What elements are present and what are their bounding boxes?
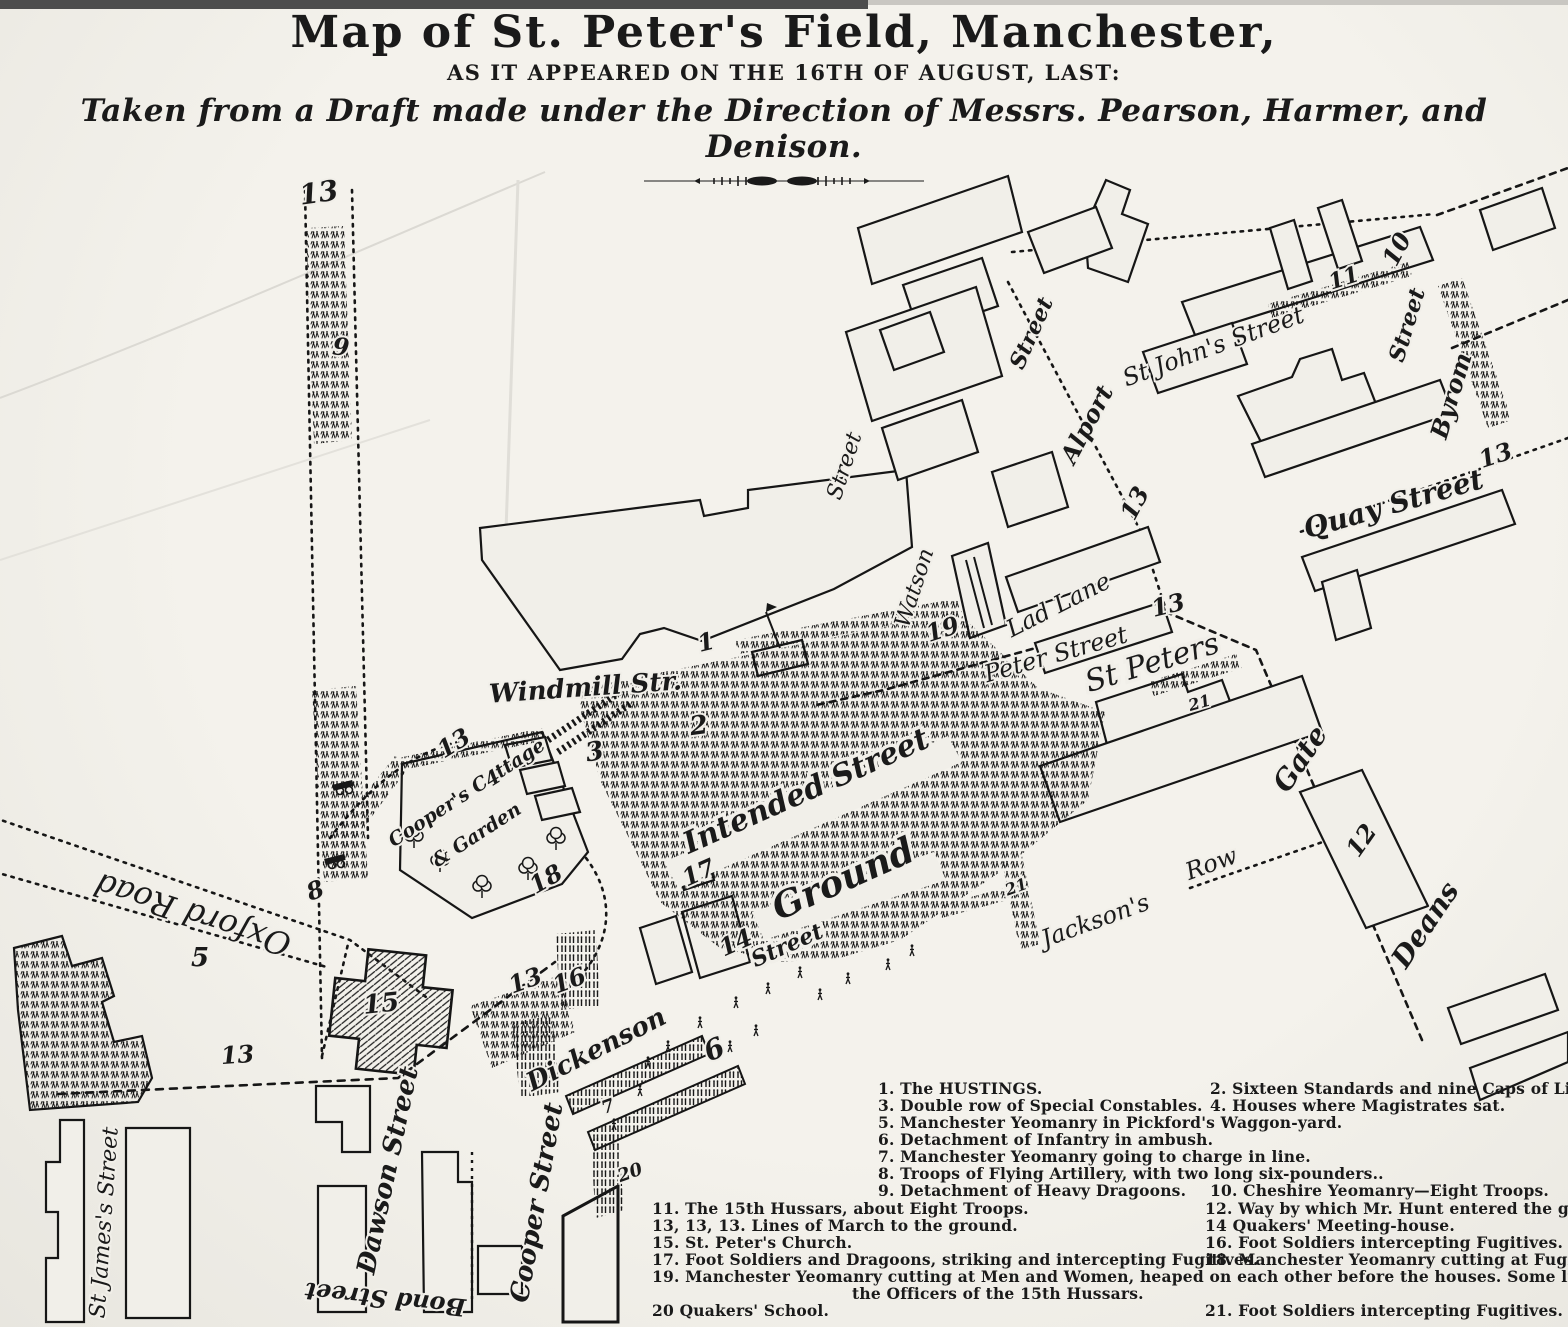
legend-row: 15. St. Peter's Church.16. Foot Soldiers… — [652, 1233, 1566, 1250]
legend-row: 20 Quakers' School.21. Foot Soldiers int… — [652, 1301, 1566, 1318]
legend-row: 3. Double row of Special Constables.4. H… — [878, 1096, 1566, 1113]
map-number: 13 — [1475, 436, 1516, 474]
street-label-alport-street: Street — [1004, 293, 1059, 373]
legend-entry-9: 9. Detachment of Heavy Dragoons. — [878, 1181, 1186, 1200]
street-label-byrom-street: Street — [1384, 285, 1431, 365]
divider-ornament — [634, 171, 934, 191]
map-number: 13 — [220, 1039, 255, 1070]
street-label-st-james-street: St James's Street — [85, 1126, 123, 1319]
legend-row: 13, 13, 13. Lines of March to the ground… — [652, 1216, 1566, 1233]
building-quakers-meeting-house-a — [640, 916, 692, 984]
building-dawson-c — [422, 1152, 472, 1312]
legend-row: 11. The 15th Hussars, about Eight Troops… — [652, 1199, 1566, 1216]
pickfords-waggon-yard — [14, 936, 152, 1110]
legend-row: 9. Detachment of Heavy Dragoons.10. Ches… — [878, 1181, 1566, 1198]
legend-row: the Officers of the 15th Hussars. — [652, 1284, 1566, 1301]
street-label-cooper-street: Cooper Street — [505, 1100, 570, 1305]
map-title: Map of St. Peter's Field, Manchester, — [0, 10, 1568, 56]
legend-block-top: 1. The HUSTINGS.2. Sixteen Standards and… — [878, 1079, 1566, 1198]
building-dawson-a — [316, 1086, 370, 1152]
map-number: 7 — [599, 1095, 618, 1119]
map-number: 9 — [331, 331, 351, 362]
legend-row: 17. Foot Soldiers and Dragoons, striking… — [652, 1250, 1566, 1267]
building-st-james-b — [126, 1128, 190, 1318]
legend-row: 5. Manchester Yeomanry in Pickford's Wag… — [878, 1113, 1566, 1130]
street-label-jacksons: Jackson's — [1033, 888, 1154, 955]
legend-entry-21: 21. Foot Soldiers intercepting Fugitives… — [1205, 1301, 1563, 1320]
passage-soldiers — [1002, 856, 1040, 950]
map-number: 6 — [699, 1030, 730, 1068]
map-number: 5 — [191, 943, 209, 973]
legend-row: 1. The HUSTINGS.2. Sixteen Standards and… — [878, 1079, 1566, 1096]
legend-row: 6. Detachment of Infantry in ambush. — [878, 1130, 1566, 1147]
map-number: 13 — [1114, 481, 1155, 524]
legend-row: 19. Manchester Yeomanry cutting at Men a… — [652, 1267, 1566, 1284]
legend-row: 8. Troops of Flying Artillery, with two … — [878, 1164, 1566, 1181]
legend-entry-10: 10. Cheshire Yeomanry—Eight Troops. — [1210, 1181, 1549, 1200]
legend-entry-20: 20 Quakers' School. — [652, 1301, 829, 1320]
building-deansgate-east — [1448, 974, 1558, 1044]
street-label-alport: Alport — [1053, 380, 1119, 470]
street-label-row: Row — [1181, 841, 1242, 886]
map-number: 15 — [362, 987, 401, 1021]
building — [992, 452, 1068, 527]
map-attribution: Taken from a Draft made under the Direct… — [0, 93, 1568, 165]
building — [858, 176, 1022, 284]
scanned-map-page: Map of St. Peter's Field, Manchester, AS… — [0, 0, 1568, 1327]
building-byrom-east — [1480, 188, 1555, 250]
building — [1322, 570, 1371, 640]
building-st-james-a — [46, 1120, 84, 1322]
legend-row: 7. Manchester Yeomanry going to charge i… — [878, 1147, 1566, 1164]
map-subtitle: AS IT APPEARED ON THE 16TH OF AUGUST, LA… — [0, 60, 1568, 85]
legend-block-bottom: 11. The 15th Hussars, about Eight Troops… — [652, 1199, 1566, 1318]
map-header: Map of St. Peter's Field, Manchester, AS… — [0, 10, 1568, 191]
